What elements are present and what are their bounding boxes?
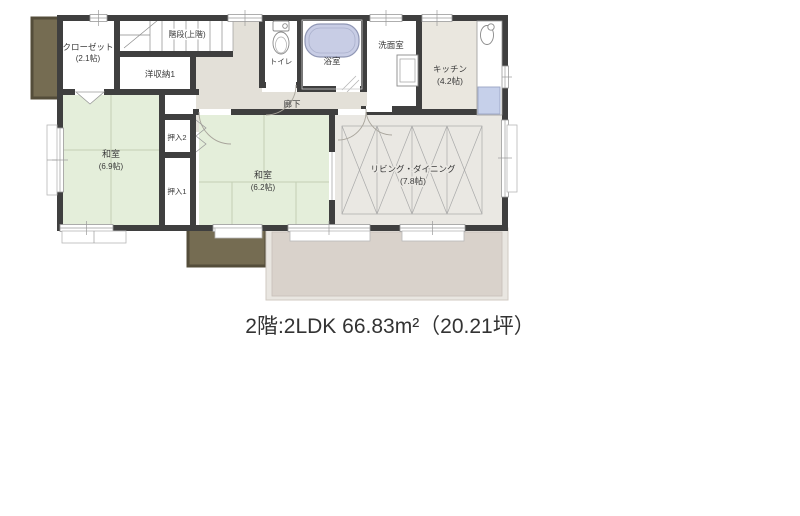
- window-sill: [215, 228, 262, 238]
- window-sill: [402, 231, 464, 241]
- closet-2-label: 押入2: [167, 132, 186, 142]
- closet-size: (2.1帖): [76, 53, 101, 63]
- terrace-inner: [272, 232, 502, 296]
- door-opening: [338, 109, 366, 115]
- window-sill: [290, 231, 370, 241]
- bathtub-icon: [305, 24, 359, 57]
- storage-label: 洋収納1: [145, 69, 176, 79]
- door-opening: [366, 106, 392, 112]
- stairs-label: 階段(上階): [168, 29, 206, 39]
- refrigerator-space: [478, 87, 500, 114]
- floor-plan: クローゼット (2.1帖) 階段(上階) 洋収納1 トイレ 浴室 洗面室 キッチ…: [0, 0, 800, 516]
- door-opening: [266, 82, 296, 88]
- closet-label: クローゼット: [62, 42, 113, 52]
- washroom-label: 洗面室: [378, 40, 404, 50]
- living-dining-label: リビング・ダイニング: [370, 164, 456, 174]
- closet-1-label: 押入1: [167, 186, 186, 196]
- japanese-room-1-label: 和室: [102, 148, 120, 159]
- wall: [259, 15, 265, 88]
- toilet-label: トイレ: [270, 57, 293, 66]
- kitchen-size: (4.2帖): [437, 76, 463, 86]
- hallway-label: 廊下: [283, 99, 301, 109]
- wall: [190, 114, 196, 231]
- floor-summary-text: 2階:2LDK 66.83m²（20.21坪）: [245, 315, 534, 338]
- kitchen-label: キッチン: [433, 64, 467, 74]
- window-sill: [507, 125, 517, 192]
- japanese-room-1-size: (6.9帖): [99, 161, 124, 171]
- door-opening: [199, 109, 231, 115]
- japanese-room-2-size: (6.2帖): [251, 182, 276, 192]
- wall: [114, 15, 120, 95]
- floor-plan-page: クローゼット (2.1帖) 階段(上階) 洋収納1 トイレ 浴室 洗面室 キッチ…: [0, 0, 800, 516]
- bath-label: 浴室: [323, 56, 341, 66]
- japanese-room-2-label: 和室: [254, 169, 272, 180]
- living-dining-size: (7.8帖): [400, 176, 426, 186]
- toilet-flush-icon: [283, 24, 288, 29]
- wall: [159, 89, 165, 231]
- wall: [117, 51, 233, 57]
- kitchen-faucet-icon: [488, 24, 494, 30]
- wall: [190, 51, 196, 95]
